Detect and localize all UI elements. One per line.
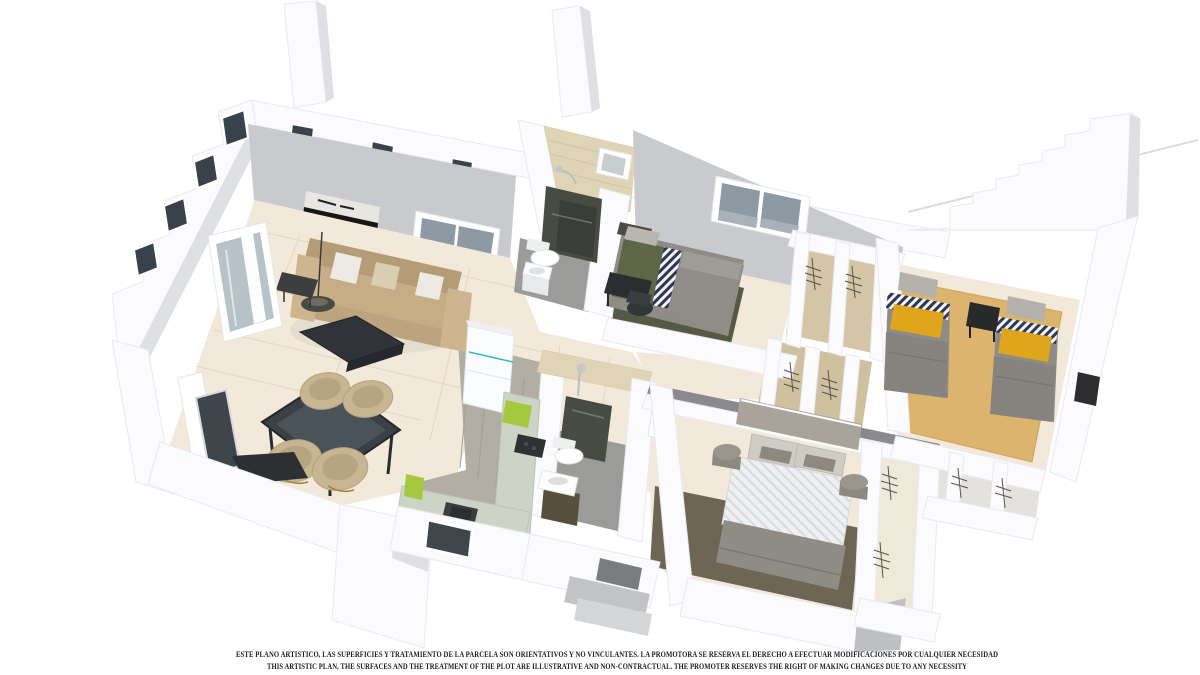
sofa-pillow (371, 262, 400, 290)
chimney-left (284, 1, 334, 108)
entrance (522, 534, 660, 636)
floorplan-render: ESTE PLANO ARTISTICO, LAS SUPERFICIES Y … (0, 0, 1200, 675)
disclaimer: ESTE PLANO ARTISTICO, LAS SUPERFICIES Y … (236, 650, 998, 671)
black-desk (1074, 372, 1100, 406)
shower-head (556, 166, 563, 173)
sofa-pillow (415, 272, 444, 300)
stairs (908, 113, 1140, 230)
lime-cabinet-end (404, 474, 424, 500)
vanity-basin (538, 470, 580, 526)
disclaimer-line-en: THIS ARTISTIC PLAN, THE SURFACES AND THE… (267, 662, 967, 671)
shower-head (577, 364, 586, 373)
disclaimer-line-es: ESTE PLANO ARTISTICO, LAS SUPERFICIES Y … (236, 650, 998, 659)
basin (522, 262, 552, 296)
chimney-center (552, 6, 600, 117)
